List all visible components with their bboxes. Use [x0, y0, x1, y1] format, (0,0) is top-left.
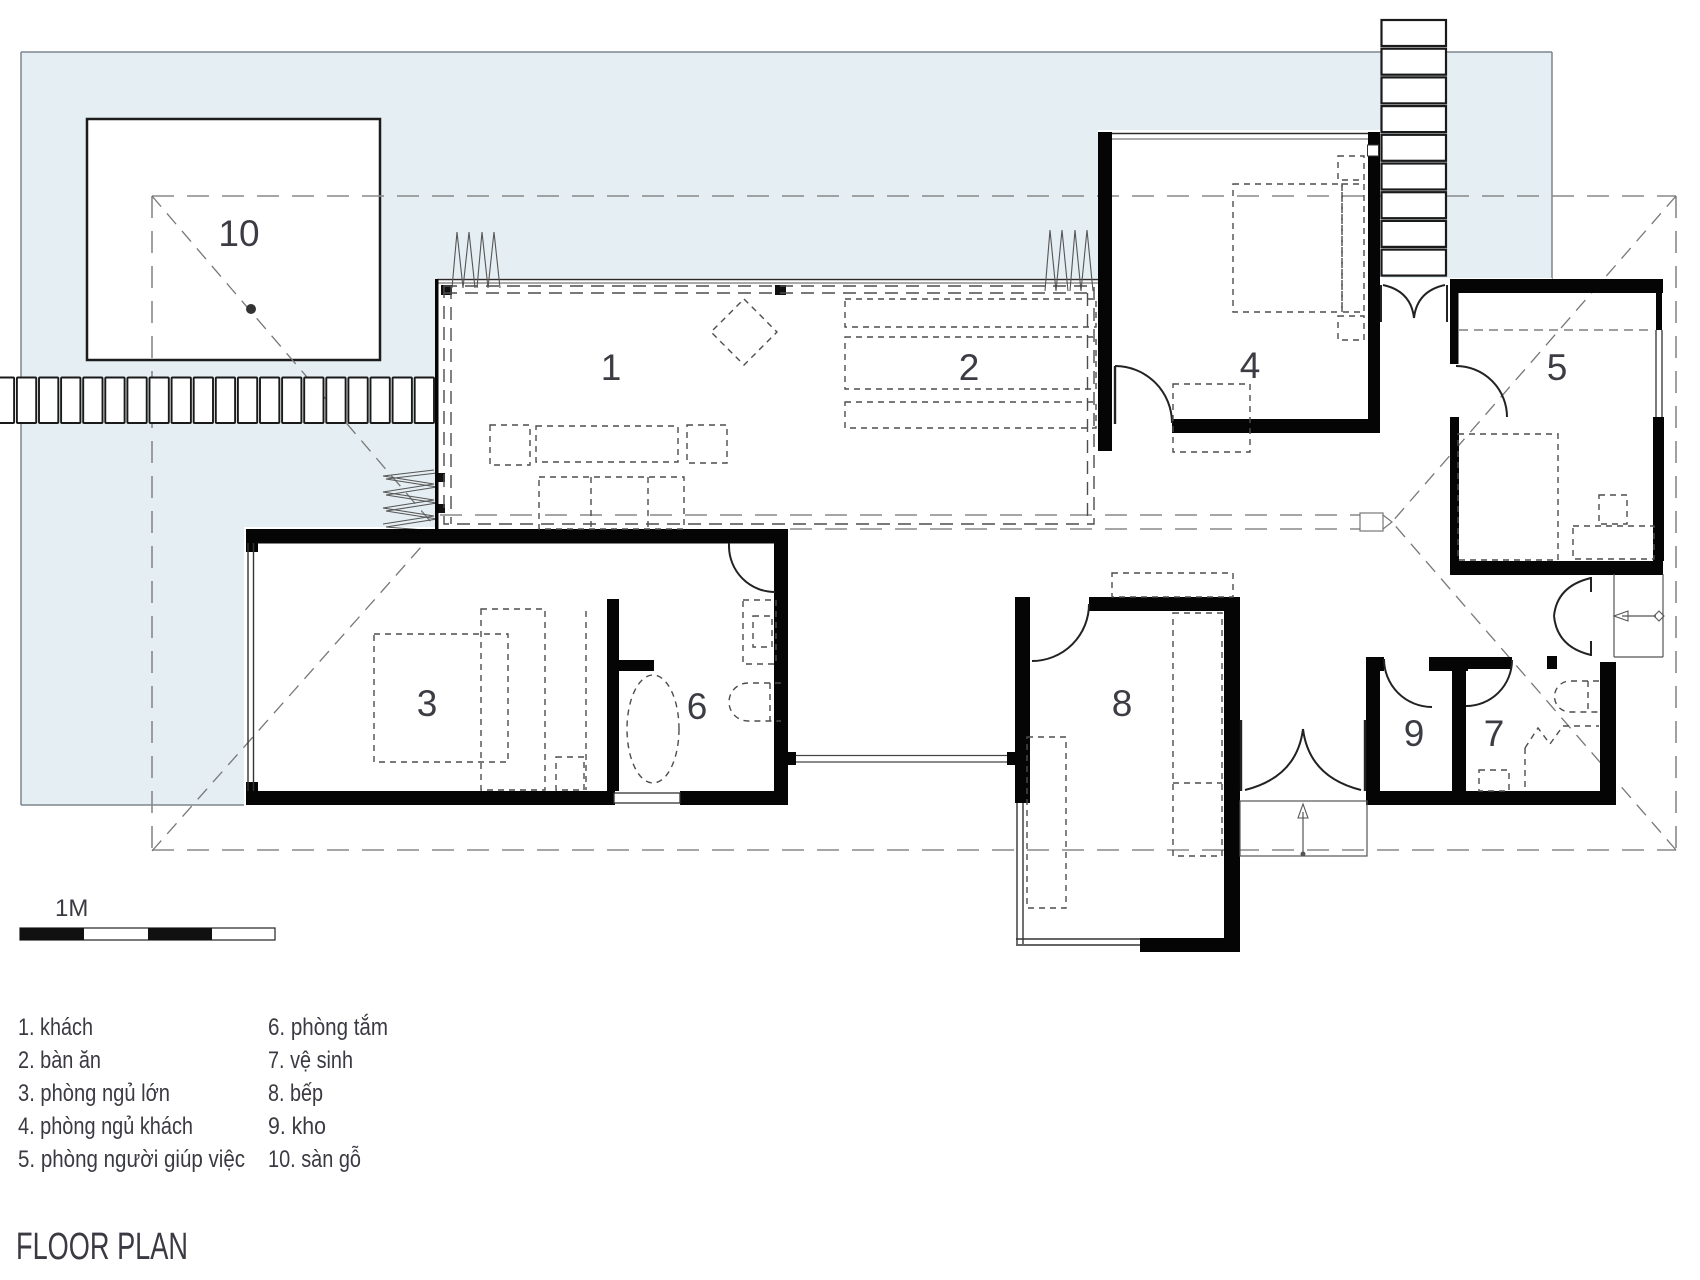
svg-text:6. phòng tắm: 6. phòng tắm	[268, 1014, 388, 1041]
svg-text:10: 10	[218, 213, 259, 254]
svg-text:5. phòng người giúp việc: 5. phòng người giúp việc	[18, 1146, 245, 1173]
svg-text:4. phòng ngủ khách: 4. phòng ngủ khách	[18, 1113, 193, 1140]
svg-text:1. khách: 1. khách	[18, 1014, 93, 1041]
svg-text:3: 3	[417, 683, 438, 724]
svg-text:4: 4	[1240, 345, 1261, 386]
svg-text:1M: 1M	[55, 895, 88, 922]
svg-text:1: 1	[601, 347, 622, 388]
svg-text:2. bàn ăn: 2. bàn ăn	[18, 1047, 101, 1074]
svg-text:6: 6	[687, 686, 708, 727]
svg-text:8: 8	[1112, 683, 1133, 724]
svg-text:7: 7	[1484, 713, 1505, 754]
svg-text:8. bếp: 8. bếp	[268, 1080, 323, 1107]
svg-text:9. kho: 9. kho	[268, 1113, 326, 1140]
svg-text:FLOOR PLAN: FLOOR PLAN	[16, 1226, 188, 1268]
svg-text:7. vệ sinh: 7. vệ sinh	[268, 1047, 353, 1074]
svg-text:3. phòng ngủ lớn: 3. phòng ngủ lớn	[18, 1080, 170, 1107]
svg-text:2: 2	[959, 347, 980, 388]
svg-text:9: 9	[1404, 713, 1425, 754]
svg-text:10. sàn gỗ: 10. sàn gỗ	[268, 1146, 361, 1173]
svg-text:5: 5	[1547, 347, 1568, 388]
